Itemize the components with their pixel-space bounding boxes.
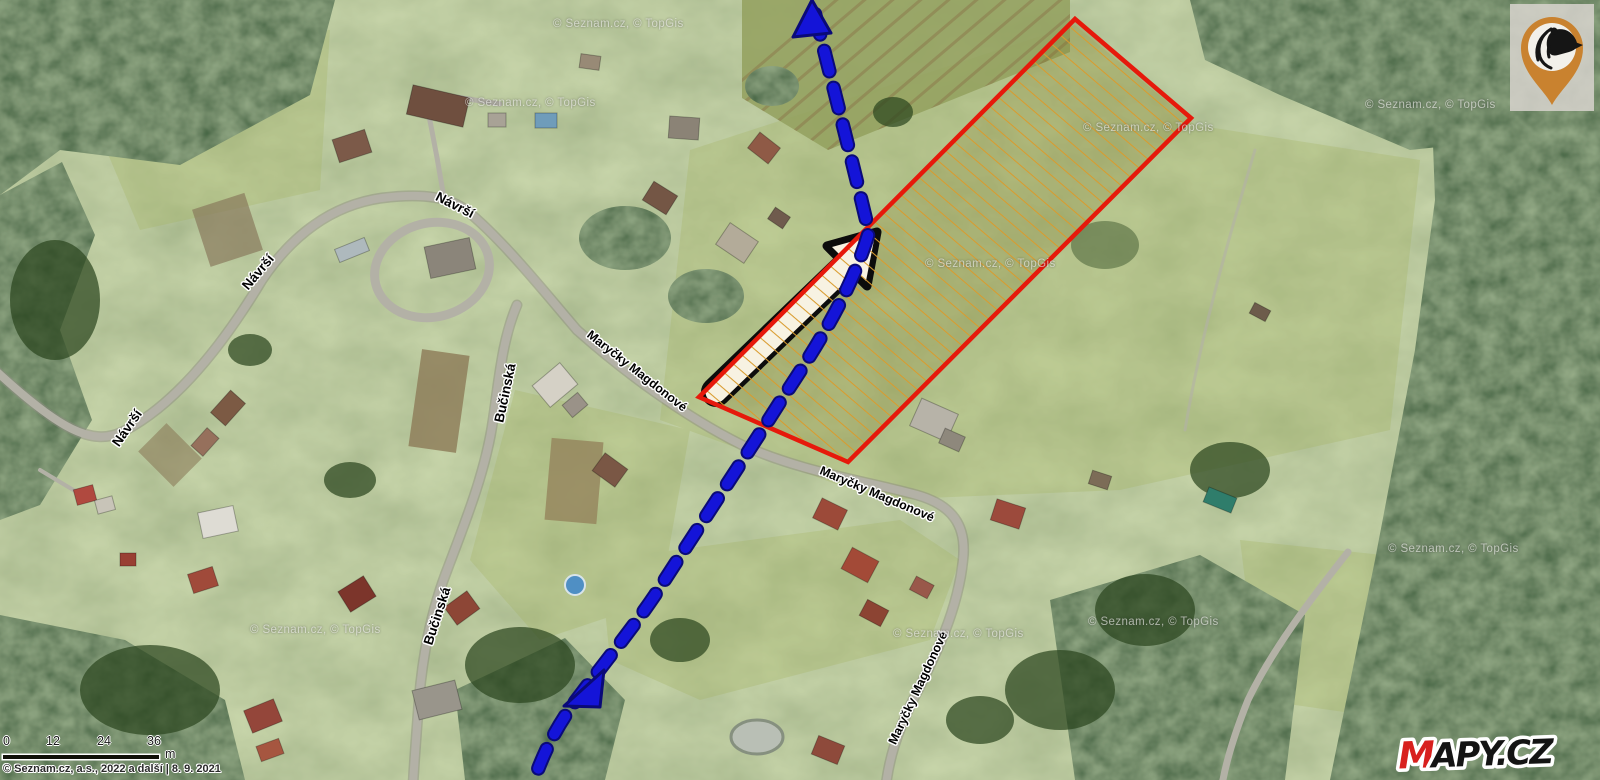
map-canvas[interactable]: M APY.CZ Návrší Návrší Návrší Maryčky Ma…	[0, 0, 1600, 780]
lion-pin-logo	[1510, 4, 1594, 111]
mapy-logo-rest: APY.CZ	[1428, 732, 1556, 776]
satellite-imagery: M APY.CZ	[0, 0, 1600, 780]
mapy-logo: M APY.CZ	[1397, 729, 1555, 777]
